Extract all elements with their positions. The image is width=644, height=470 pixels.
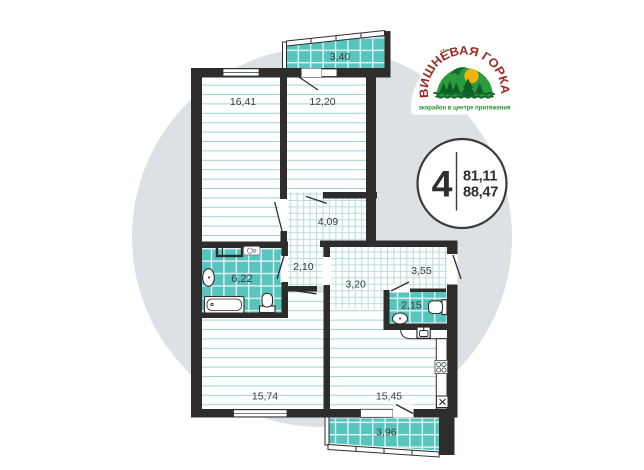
svg-text:12,20: 12,20 bbox=[309, 96, 335, 108]
svg-text:88,47: 88,47 bbox=[463, 184, 498, 200]
svg-text:экорайон в центре притяжения: экорайон в центре притяжения bbox=[419, 104, 511, 111]
svg-text:2,15: 2,15 bbox=[401, 300, 422, 312]
svg-text:3,55: 3,55 bbox=[411, 265, 432, 277]
svg-text:4: 4 bbox=[432, 162, 453, 204]
svg-text:3,40: 3,40 bbox=[330, 51, 351, 63]
svg-text:15,45: 15,45 bbox=[376, 391, 402, 403]
svg-text:2,10: 2,10 bbox=[293, 261, 314, 273]
svg-text:3,20: 3,20 bbox=[345, 279, 366, 291]
svg-text:16,41: 16,41 bbox=[230, 96, 256, 108]
svg-text:81,11: 81,11 bbox=[463, 168, 497, 184]
svg-text:3,96: 3,96 bbox=[376, 427, 397, 439]
svg-text:6,22: 6,22 bbox=[231, 273, 252, 285]
svg-text:4,09: 4,09 bbox=[318, 216, 339, 228]
svg-text:15,74: 15,74 bbox=[252, 391, 278, 403]
